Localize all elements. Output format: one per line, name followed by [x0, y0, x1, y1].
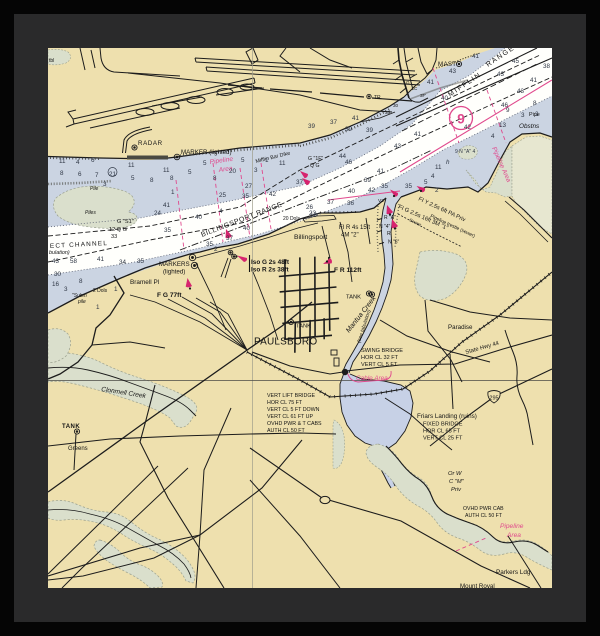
svg-text:11: 11 [128, 162, 135, 169]
svg-text:TANK: TANK [62, 424, 80, 430]
svg-text:37: 37 [327, 199, 335, 206]
svg-text:6: 6 [78, 171, 82, 178]
svg-text:33: 33 [385, 110, 391, 115]
svg-text:43: 43 [449, 68, 457, 75]
svg-text:9 N "A" 4: 9 N "A" 4 [455, 149, 475, 155]
svg-text:bulation): bulation) [49, 250, 70, 256]
svg-text:R "A": R "A" [384, 215, 396, 221]
svg-text:4: 4 [219, 208, 223, 215]
svg-text:39: 39 [366, 127, 374, 134]
svg-text:2: 2 [214, 246, 218, 253]
svg-text:OVHD PWR & T CABS: OVHD PWR & T CABS [267, 421, 322, 427]
svg-text:42: 42 [464, 124, 472, 131]
svg-text:8: 8 [150, 177, 154, 184]
svg-text:2 Dols: 2 Dols [93, 288, 108, 294]
svg-text:3: 3 [535, 111, 539, 118]
svg-text:39: 39 [345, 126, 353, 133]
svg-text:25: 25 [219, 192, 227, 199]
svg-text:Pipeline: Pipeline [500, 523, 524, 530]
svg-text:(lighted): (lighted) [163, 269, 185, 276]
svg-text:41: 41 [427, 79, 435, 86]
svg-text:N "6": N "6" [388, 240, 400, 246]
svg-text:1: 1 [114, 286, 118, 293]
svg-text:11: 11 [435, 164, 442, 171]
svg-text:13: 13 [499, 122, 507, 129]
svg-text:HOR CL 75 FT: HOR CL 75 FT [267, 400, 303, 406]
svg-text:30: 30 [393, 103, 399, 108]
svg-text:40: 40 [348, 188, 356, 195]
svg-text:tbl: tbl [49, 58, 54, 64]
svg-text:5: 5 [424, 179, 428, 186]
svg-text:Mount Royal: Mount Royal [460, 583, 495, 590]
svg-text:h: h [446, 159, 450, 166]
svg-text:V2: V2 [378, 198, 384, 204]
svg-text:Priv: Priv [451, 487, 462, 493]
svg-text:58: 58 [70, 258, 78, 265]
svg-text:Iso G 2s 48ft: Iso G 2s 48ft [251, 259, 290, 266]
svg-text:39: 39 [364, 177, 372, 184]
svg-text:Parkers Ldg: Parkers Ldg [496, 569, 531, 576]
svg-text:5: 5 [131, 175, 135, 182]
svg-text:33: 33 [111, 234, 117, 240]
svg-text:1: 1 [265, 157, 269, 164]
svg-text:Pile: Pile [90, 186, 99, 192]
svg-text:295: 295 [489, 396, 498, 402]
svg-text:3: 3 [521, 112, 525, 119]
svg-text:5: 5 [188, 169, 192, 176]
svg-text:FI R 4s 15ft: FI R 4s 15ft [339, 225, 370, 231]
svg-text:41: 41 [377, 168, 385, 175]
svg-text:Piles: Piles [85, 210, 96, 216]
svg-text:Q G: Q G [310, 163, 320, 169]
svg-text:3: 3 [103, 181, 107, 188]
svg-text:6: 6 [91, 157, 95, 164]
svg-text:42: 42 [368, 187, 376, 194]
svg-text:20 Dols: 20 Dols [283, 216, 300, 222]
svg-text:11: 11 [59, 158, 66, 165]
svg-text:VERT CL 61 FT UP: VERT CL 61 FT UP [267, 414, 313, 420]
svg-text:30: 30 [54, 271, 62, 278]
svg-text:8: 8 [533, 100, 537, 107]
svg-text:39: 39 [308, 123, 316, 130]
svg-text:Or W: Or W [448, 471, 462, 477]
svg-text:8: 8 [170, 175, 174, 182]
svg-text:35: 35 [405, 183, 413, 190]
svg-text:37: 37 [330, 119, 338, 126]
svg-text:Cable Area: Cable Area [356, 375, 388, 382]
svg-text:42: 42 [269, 191, 277, 198]
svg-text:VERT LIFT BRIDGE: VERT LIFT BRIDGE [267, 393, 315, 399]
svg-text:C "M": C "M" [449, 479, 465, 485]
svg-text:TANK: TANK [346, 295, 361, 301]
svg-text:41: 41 [414, 131, 422, 138]
svg-text:Friars Landing (ruins): Friars Landing (ruins) [417, 413, 477, 420]
svg-text:35: 35 [206, 241, 214, 248]
svg-text:40: 40 [195, 214, 203, 221]
svg-text:11: 11 [279, 160, 286, 167]
svg-text:1: 1 [171, 189, 175, 196]
svg-text:12 Q G: 12 Q G [109, 227, 127, 233]
svg-text:VERT CL 25 FT: VERT CL 25 FT [423, 436, 463, 442]
svg-text:9: 9 [506, 107, 510, 114]
svg-text:35: 35 [164, 227, 172, 234]
svg-text:41: 41 [163, 202, 171, 209]
svg-text:Area: Area [506, 532, 521, 539]
svg-text:MARKERS: MARKERS [159, 261, 190, 268]
svg-text:11: 11 [163, 167, 170, 174]
svg-text:Greens: Greens [68, 446, 88, 452]
svg-text:24: 24 [154, 210, 162, 217]
svg-text:HOR CL 65 FT: HOR CL 65 FT [423, 429, 461, 435]
svg-text:TANK: TANK [296, 324, 311, 330]
svg-text:18: 18 [310, 212, 318, 219]
svg-text:41: 41 [472, 53, 480, 60]
svg-text:8: 8 [60, 170, 64, 177]
svg-text:45: 45 [512, 58, 520, 65]
svg-text:3: 3 [64, 286, 68, 293]
svg-text:4: 4 [76, 159, 80, 166]
svg-text:G: G [406, 80, 410, 85]
svg-text:1: 1 [96, 304, 100, 311]
svg-text:TR: TR [374, 95, 381, 101]
svg-text:G "S1": G "S1" [117, 219, 134, 225]
svg-text:35: 35 [381, 183, 389, 190]
svg-text:38: 38 [543, 63, 551, 70]
svg-text:46: 46 [345, 159, 353, 166]
svg-text:43: 43 [497, 71, 505, 78]
svg-text:AUTH CL 50 FT: AUTH CL 50 FT [267, 428, 306, 434]
svg-text:MAST: MAST [438, 61, 456, 68]
svg-text:37: 37 [296, 179, 304, 186]
svg-text:43: 43 [52, 258, 60, 265]
svg-text:R: R [387, 231, 391, 237]
svg-text:20: 20 [229, 168, 237, 175]
svg-text:4: 4 [491, 133, 495, 140]
svg-text:4M "2": 4M "2" [341, 233, 359, 239]
svg-text:HOR CL 32 FT: HOR CL 32 FT [361, 355, 399, 361]
svg-text:FIXED BRIDGE: FIXED BRIDGE [423, 422, 463, 428]
svg-text:3F': 3F' [420, 93, 426, 98]
svg-text:3: 3 [254, 167, 258, 174]
svg-text:Obstns: Obstns [519, 123, 540, 130]
svg-text:40: 40 [441, 95, 449, 102]
svg-text:Iso R 2s 38ft: Iso R 2s 38ft [251, 267, 290, 274]
svg-text:F G 77ft: F G 77ft [157, 292, 182, 299]
svg-text:21: 21 [109, 171, 117, 178]
svg-text:2: 2 [435, 187, 439, 194]
svg-text:MARKER (lighted): MARKER (lighted) [181, 149, 232, 156]
svg-text:RADAR: RADAR [138, 140, 163, 147]
svg-text:VERT CL 5 FT: VERT CL 5 FT [361, 362, 398, 368]
svg-text:AUTH CL 50 FT: AUTH CL 50 FT [465, 513, 503, 519]
svg-text:Billingsport: Billingsport [294, 234, 327, 241]
svg-text:pile: pile [77, 299, 86, 305]
svg-text:Paradise: Paradise [448, 324, 473, 331]
svg-text:4: 4 [431, 173, 435, 180]
svg-text:F R 112ft: F R 112ft [334, 267, 362, 274]
svg-text:SWING BRIDGE: SWING BRIDGE [361, 348, 403, 354]
svg-text:37: 37 [226, 235, 234, 242]
svg-text:N "4": N "4" [379, 224, 391, 230]
svg-text:41: 41 [352, 115, 360, 122]
svg-text:43: 43 [517, 88, 525, 95]
svg-text:8: 8 [79, 278, 83, 285]
svg-text:34: 34 [119, 259, 127, 266]
svg-text:VERT CL 5 FT DOWN: VERT CL 5 FT DOWN [267, 407, 320, 413]
svg-text:41: 41 [97, 256, 105, 263]
svg-text:5: 5 [203, 160, 207, 167]
svg-text:16: 16 [52, 281, 60, 288]
svg-text:Bramell Pl: Bramell Pl [130, 279, 159, 286]
svg-text:5: 5 [241, 157, 245, 164]
svg-text:8: 8 [213, 175, 217, 182]
svg-text:40: 40 [243, 225, 251, 232]
svg-text:41: 41 [530, 77, 538, 84]
svg-text:43: 43 [394, 143, 402, 150]
svg-text:27: 27 [245, 183, 253, 190]
svg-text:PAULSBORO: PAULSBORO [254, 337, 317, 348]
svg-text:36: 36 [347, 200, 355, 207]
svg-text:35: 35 [137, 258, 145, 265]
svg-text:G "1F": G "1F" [308, 156, 323, 162]
svg-text:35: 35 [242, 193, 250, 200]
svg-text:OVHD PWR CAB: OVHD PWR CAB [463, 506, 504, 512]
svg-text:7: 7 [95, 172, 99, 179]
